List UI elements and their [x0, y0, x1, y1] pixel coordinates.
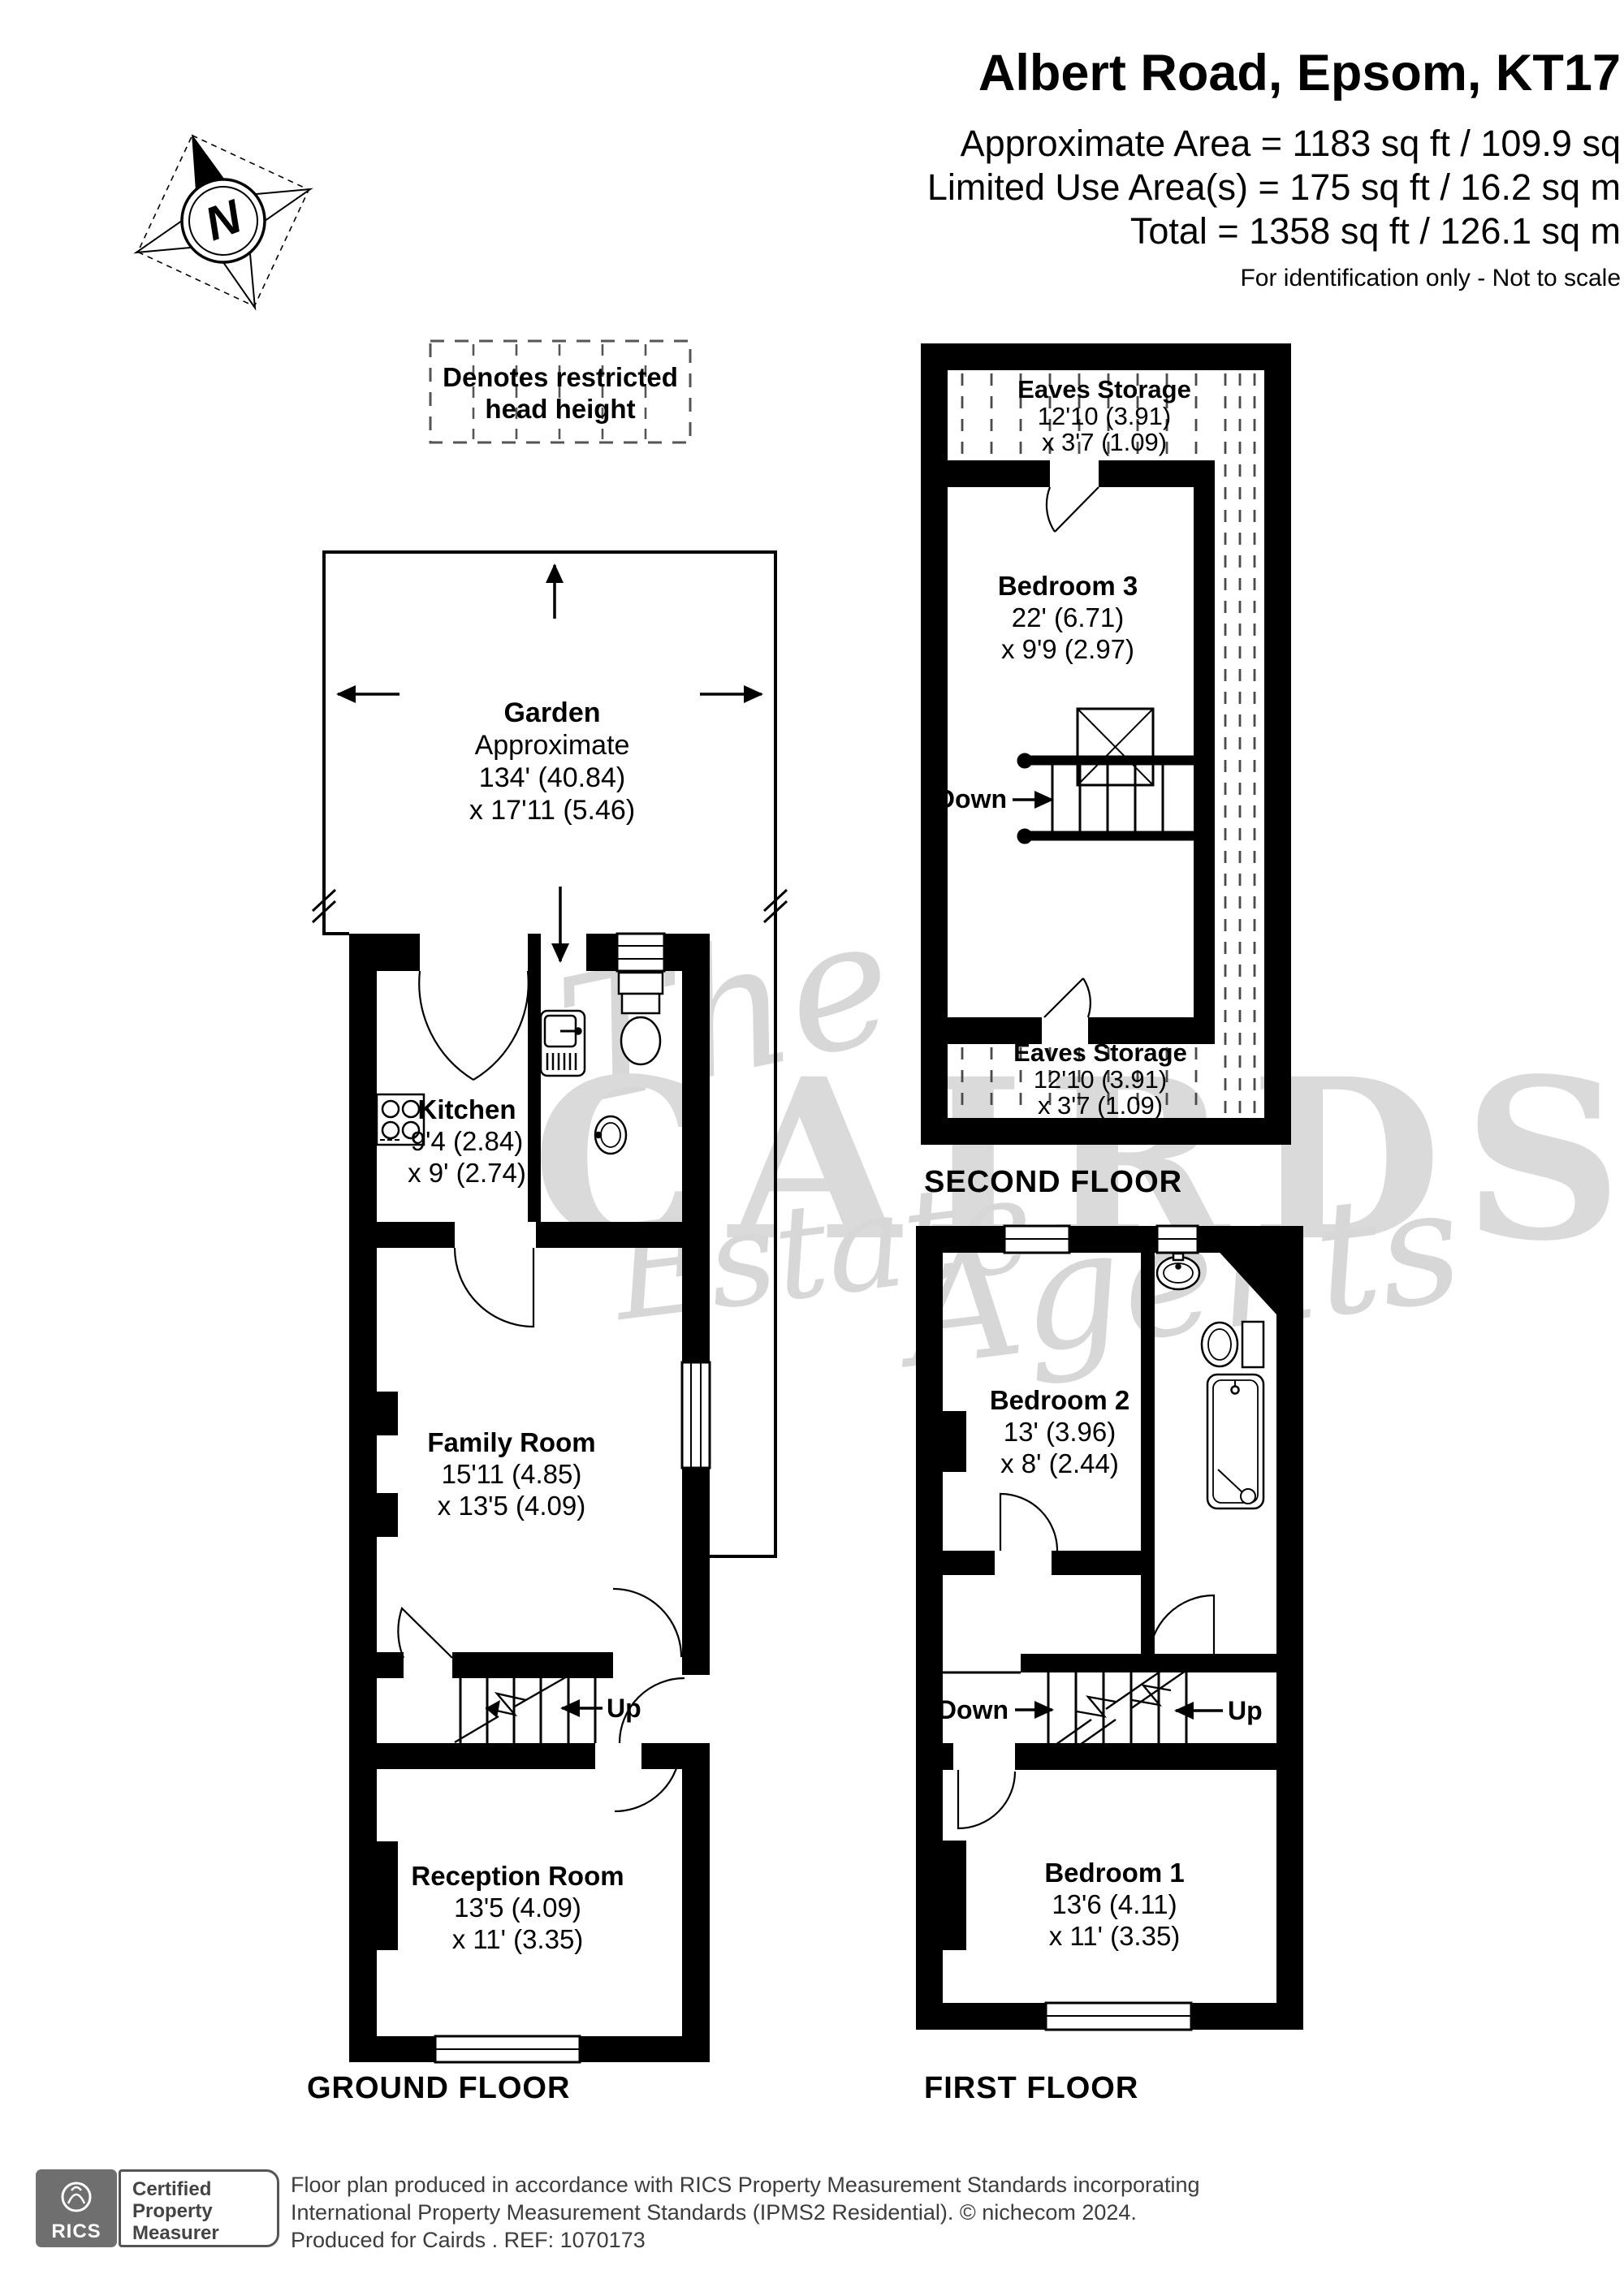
floorplan-page: The CAIRDS Estate Agents N	[0, 0, 1624, 2296]
second-floor-stairs	[1013, 753, 1194, 844]
legend-label: Denotes restrictedhead height	[438, 362, 682, 425]
header: Albert Road, Epsom, KT17 Approximate Are…	[687, 44, 1621, 292]
bathroom-toilet-icon	[1202, 1322, 1263, 1367]
scale-disclaimer: For identification only - Not to scale	[687, 265, 1621, 292]
footer-disclaimer: Floor plan produced in accordance with R…	[291, 2171, 1427, 2254]
utility-sink-icon	[541, 1011, 585, 1076]
reception-room-label: Reception Room 13'5 (4.09) x 11' (3.35)	[378, 1861, 658, 1956]
first-floor-title: FIRST FLOOR	[924, 2070, 1249, 2107]
ground-up-label: Up	[607, 1694, 680, 1724]
front-door-gap	[680, 1675, 711, 1743]
approximate-area: Approximate Area = 1183 sq ft / 109.9 sq	[687, 122, 1621, 166]
first-down-label: Down	[903, 1695, 1009, 1726]
second-down-label: Down	[901, 784, 1007, 815]
ground-wc-basin-icon	[595, 1116, 626, 1154]
eaves-storage-bottom-label: Eaves Storage 12'10 (3.91) x 3'7 (1.09)	[970, 1040, 1230, 1120]
eaves-storage-top-label: Eaves Storage 12'10 (3.91) x 3'7 (1.09)	[974, 377, 1234, 456]
rics-logo: RICS	[36, 2169, 117, 2247]
footer-line2: International Property Measurement Stand…	[291, 2199, 1427, 2226]
total-area: Total = 1358 sq ft / 126.1 sq m	[687, 209, 1621, 253]
rics-logo-text: RICS	[51, 2220, 101, 2242]
certified-measurer-badge: Certified Property Measurer	[119, 2169, 279, 2247]
first-floor-stairs	[1015, 1671, 1223, 1745]
ground-wc-toilet-icon	[619, 973, 663, 1064]
rooflight-icon	[1078, 709, 1153, 785]
ground-floor-title: GROUND FLOOR	[307, 2070, 632, 2107]
first-up-label: Up	[1228, 1696, 1301, 1727]
second-floor-title: SECOND FLOOR	[924, 1164, 1265, 1201]
kitchen-label: Kitchen 9'4 (2.84) x 9' (2.74)	[365, 1094, 568, 1189]
ground-floor-stairs	[455, 1676, 603, 1743]
page-title: Albert Road, Epsom, KT17	[687, 44, 1621, 102]
bedroom2-label: Bedroom 2 13' (3.96) x 8' (2.44)	[934, 1385, 1186, 1480]
bathroom-bath-icon	[1207, 1375, 1263, 1508]
footer-line3: Produced for Cairds . REF: 1070173	[291, 2226, 1427, 2254]
family-room-label: Family Room 15'11 (4.85) x 13'5 (4.09)	[374, 1427, 650, 1522]
bathroom-sink-icon	[1157, 1254, 1199, 1289]
second-floor-doors	[1044, 487, 1099, 1017]
garden-label: Garden Approximate 134' (40.84) x 17'11 …	[410, 697, 694, 826]
floorplan-graphic: N	[0, 0, 1624, 2296]
bedroom1-label: Bedroom 1 13'6 (4.11) x 11' (3.35)	[987, 1858, 1242, 1953]
limited-use-area: Limited Use Area(s) = 175 sq ft / 16.2 s…	[687, 166, 1621, 209]
footer-line1: Floor plan produced in accordance with R…	[291, 2171, 1427, 2199]
compass-north-icon: N	[105, 102, 342, 339]
second-floor-walls	[921, 343, 1291, 1145]
bedroom3-label: Bedroom 3 22' (6.71) x 9'9 (2.97)	[942, 571, 1194, 666]
